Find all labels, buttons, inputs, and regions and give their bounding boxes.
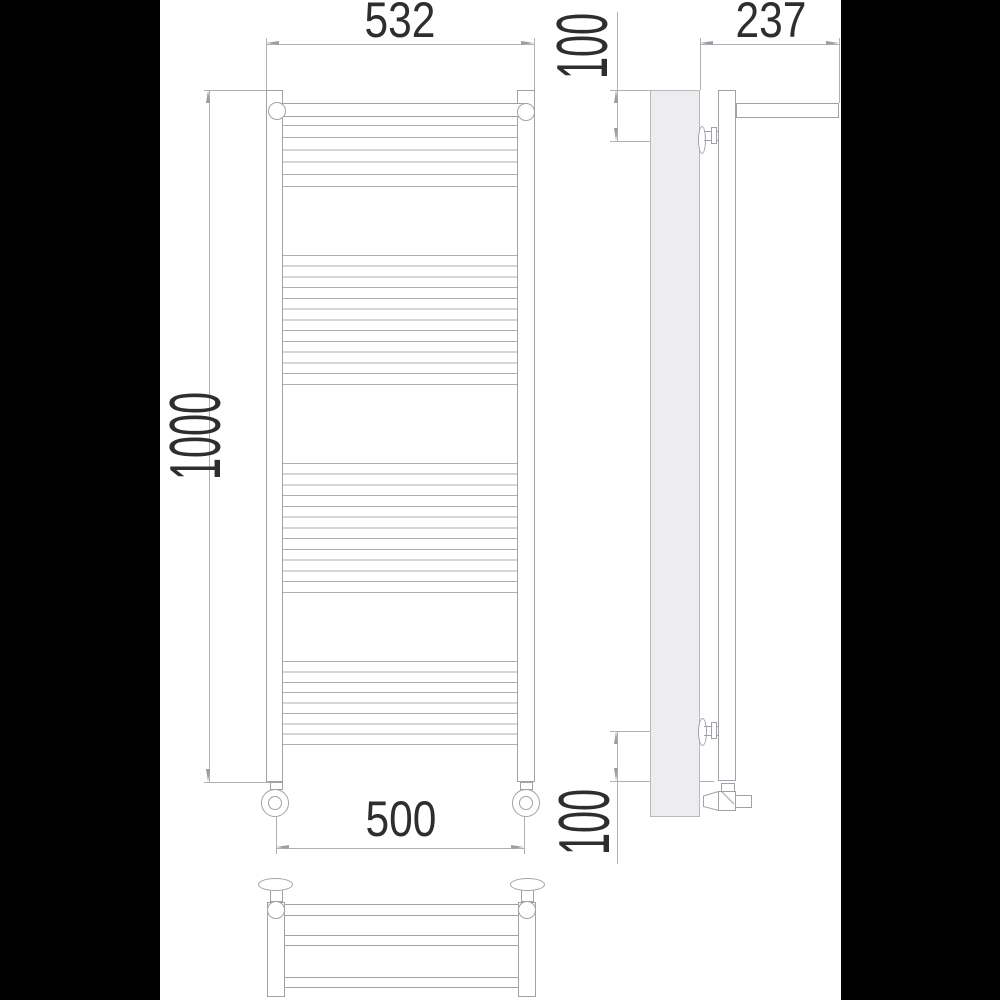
top-collector-bar [276,103,526,117]
wall-panel [650,90,700,817]
arrowhead-left-icon [266,41,279,45]
arrowhead-down-icon [614,128,618,141]
arrowhead-down-icon [206,769,210,782]
dimension-label: 237 [736,0,807,45]
bracket-pin-collar-top [711,127,717,144]
dimension-label: 532 [365,0,436,45]
wall-bracket-flange-bottom [698,718,707,746]
left-riser-tube [266,90,283,782]
extension-line [700,38,701,90]
arrowhead-up-icon [614,731,618,744]
extension-line [266,38,267,90]
arrowhead-down-icon [614,768,618,781]
shelf-joint-left [267,901,285,919]
extension-line [610,90,651,91]
arrowhead-right-icon [511,845,524,849]
rung-group [283,125,517,187]
drawing-canvas: 532 1000 500 [0,0,1000,1000]
dimension-label: 1000 [160,392,232,480]
shelf-crossbar [284,904,519,916]
extension-line [524,817,525,854]
arrowhead-left-icon [700,41,713,45]
rung-group [283,661,517,745]
bracket-pin-collar-bottom [711,722,717,739]
collector-end-cap-right [517,103,535,121]
extension-line [839,38,840,103]
arrowhead-right-icon [826,41,839,45]
extension-line [204,90,266,91]
rung-group [283,463,517,593]
wall-flange-left [258,878,293,891]
shelf-crossbar [284,977,519,988]
valve-cap-inner-left [268,796,282,810]
shelf-crossbar [284,935,519,946]
shelf-arm [736,103,839,118]
shelf-joint-right [518,901,536,919]
collector-end-cap-left [268,102,286,120]
extension-line [204,782,270,783]
right-riser-tube [517,90,535,782]
arrowhead-right-icon [521,41,534,45]
wall-flange-right [510,878,545,891]
valve-cap-inner-right [519,796,533,810]
dimension-label: 500 [366,794,437,844]
side-riser-tube [718,90,736,781]
extension-line [276,817,277,854]
rung-group [283,255,517,385]
bottom-valve-assembly [698,778,760,818]
dimension-label: 100 [549,789,621,855]
dimension-line [276,848,524,849]
arrowhead-up-icon [206,90,210,103]
dimension-label: 100 [547,13,619,79]
arrowhead-left-icon [276,845,289,849]
extension-line [610,141,651,142]
extension-line [534,38,535,90]
arrowhead-up-icon [614,90,618,103]
